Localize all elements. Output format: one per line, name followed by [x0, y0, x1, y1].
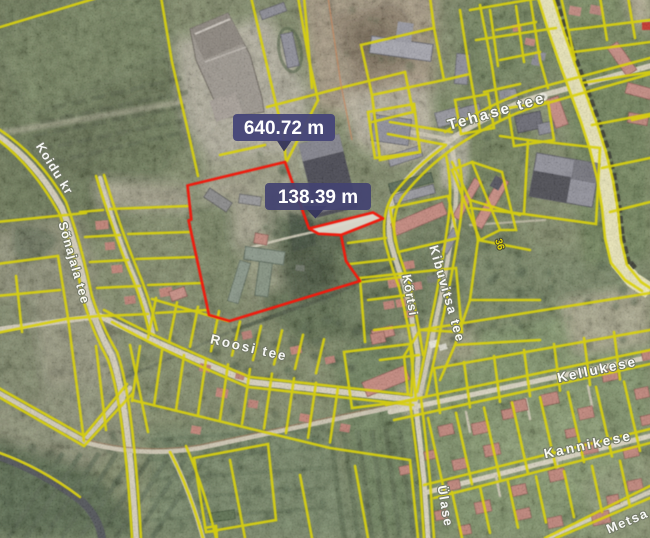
- svg-text:138.39 m: 138.39 m: [278, 187, 358, 208]
- svg-text:640.72 m: 640.72 m: [244, 118, 324, 139]
